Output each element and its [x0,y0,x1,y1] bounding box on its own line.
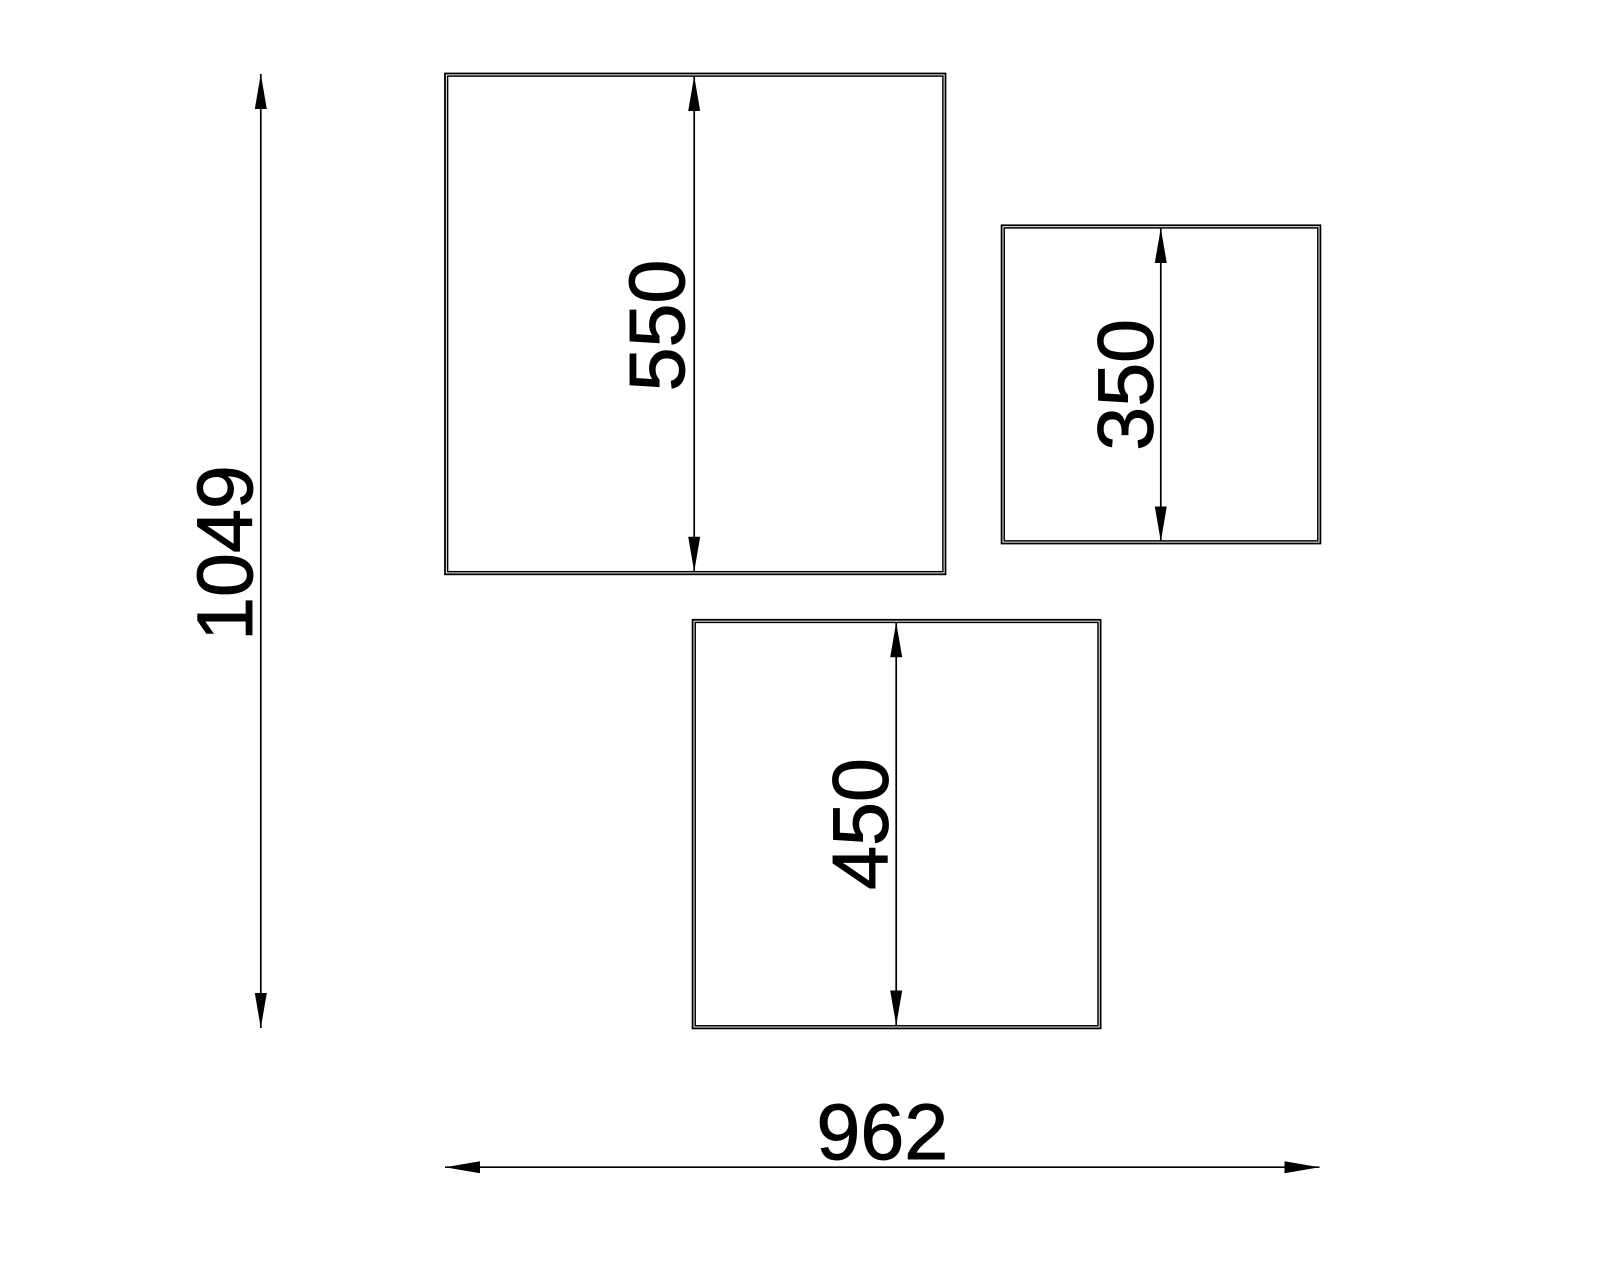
svg-text:450: 450 [816,758,905,890]
svg-text:1049: 1049 [180,465,269,641]
svg-text:550: 550 [612,260,701,392]
svg-text:962: 962 [816,1087,948,1176]
svg-text:350: 350 [1080,319,1169,451]
